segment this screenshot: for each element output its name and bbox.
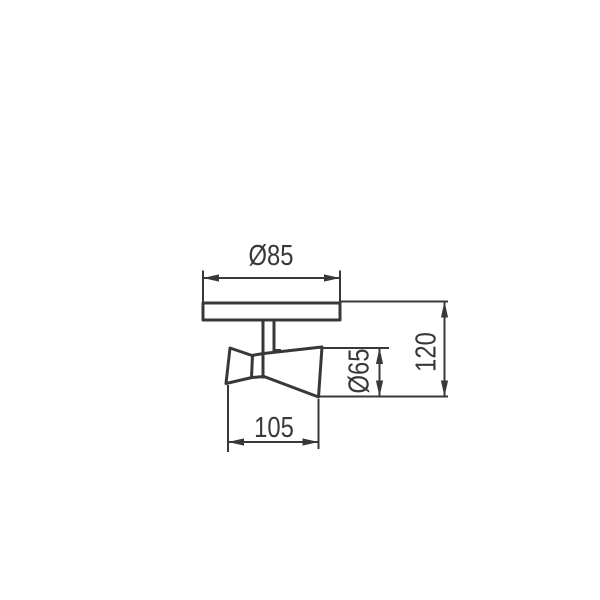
- arrowhead-left-icon: [203, 274, 219, 281]
- spotlight-dimension-drawing: Ø85 120 Ø65 105: [0, 0, 600, 600]
- dimension-label-head-diameter: Ø65: [342, 349, 375, 394]
- arrowhead-left-icon: [228, 438, 244, 445]
- head-joint-ring-line: [252, 356, 253, 378]
- stem-right-edge: [274, 320, 280, 351]
- dimension-label-plate-diameter: Ø85: [249, 239, 294, 272]
- dimension-label-overall-height: 120: [409, 332, 442, 372]
- arrowhead-down-icon: [441, 381, 448, 397]
- dimension-label-head-length: 105: [254, 411, 294, 444]
- spotlight-fixture: [203, 303, 340, 397]
- mounting-plate: [203, 303, 340, 320]
- arrowhead-down-icon: [376, 381, 383, 397]
- dimension-plate-diameter: Ø85: [203, 239, 340, 303]
- arrowhead-up-icon: [441, 302, 448, 318]
- arrowhead-up-icon: [376, 348, 383, 364]
- dimension-head-diameter: Ø65: [323, 348, 389, 397]
- arrowhead-right-icon: [303, 438, 319, 445]
- arrowhead-right-icon: [324, 274, 340, 281]
- technical-drawing-page: Ø85 120 Ø65 105: [0, 0, 600, 600]
- spot-head-outline: [226, 347, 322, 397]
- dimension-head-length: 105: [228, 385, 319, 452]
